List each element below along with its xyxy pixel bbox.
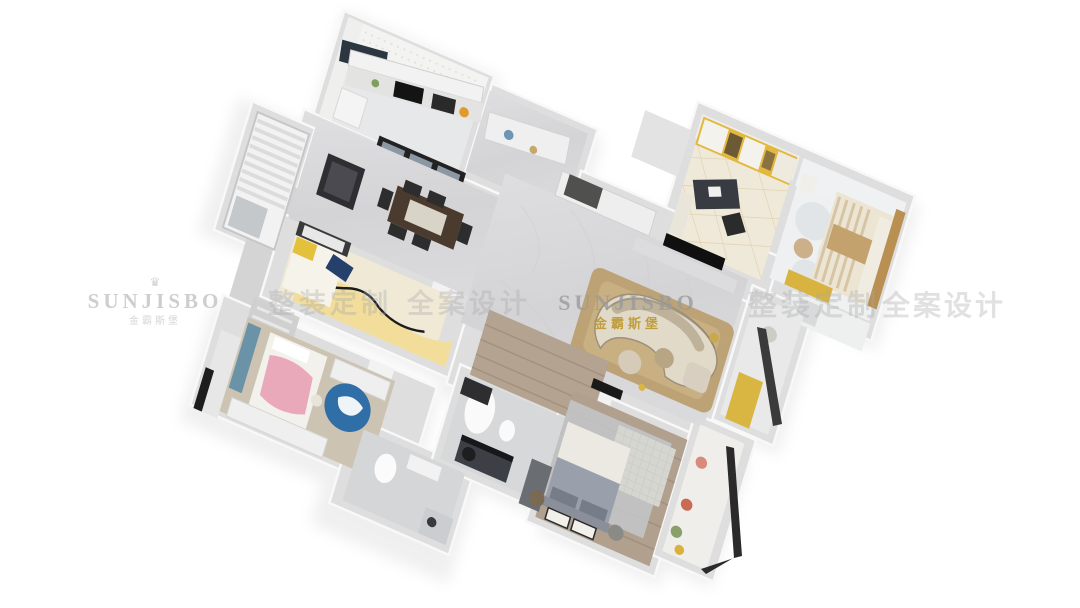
svg-text:全案设计: 全案设计 (881, 289, 1006, 321)
svg-text:整装定制: 整装定制 (268, 288, 392, 319)
svg-text:金霸斯堡: 金霸斯堡 (129, 314, 181, 327)
svg-text:金霸斯堡: 金霸斯堡 (593, 316, 662, 331)
svg-text:SUNJISBO: SUNJISBO (558, 290, 698, 315)
svg-text:SUNJISBO: SUNJISBO (88, 289, 223, 313)
svg-text:整装定制: 整装定制 (748, 288, 880, 322)
svg-text:全案设计: 全案设计 (406, 288, 531, 319)
svg-text:♛: ♛ (150, 275, 161, 289)
